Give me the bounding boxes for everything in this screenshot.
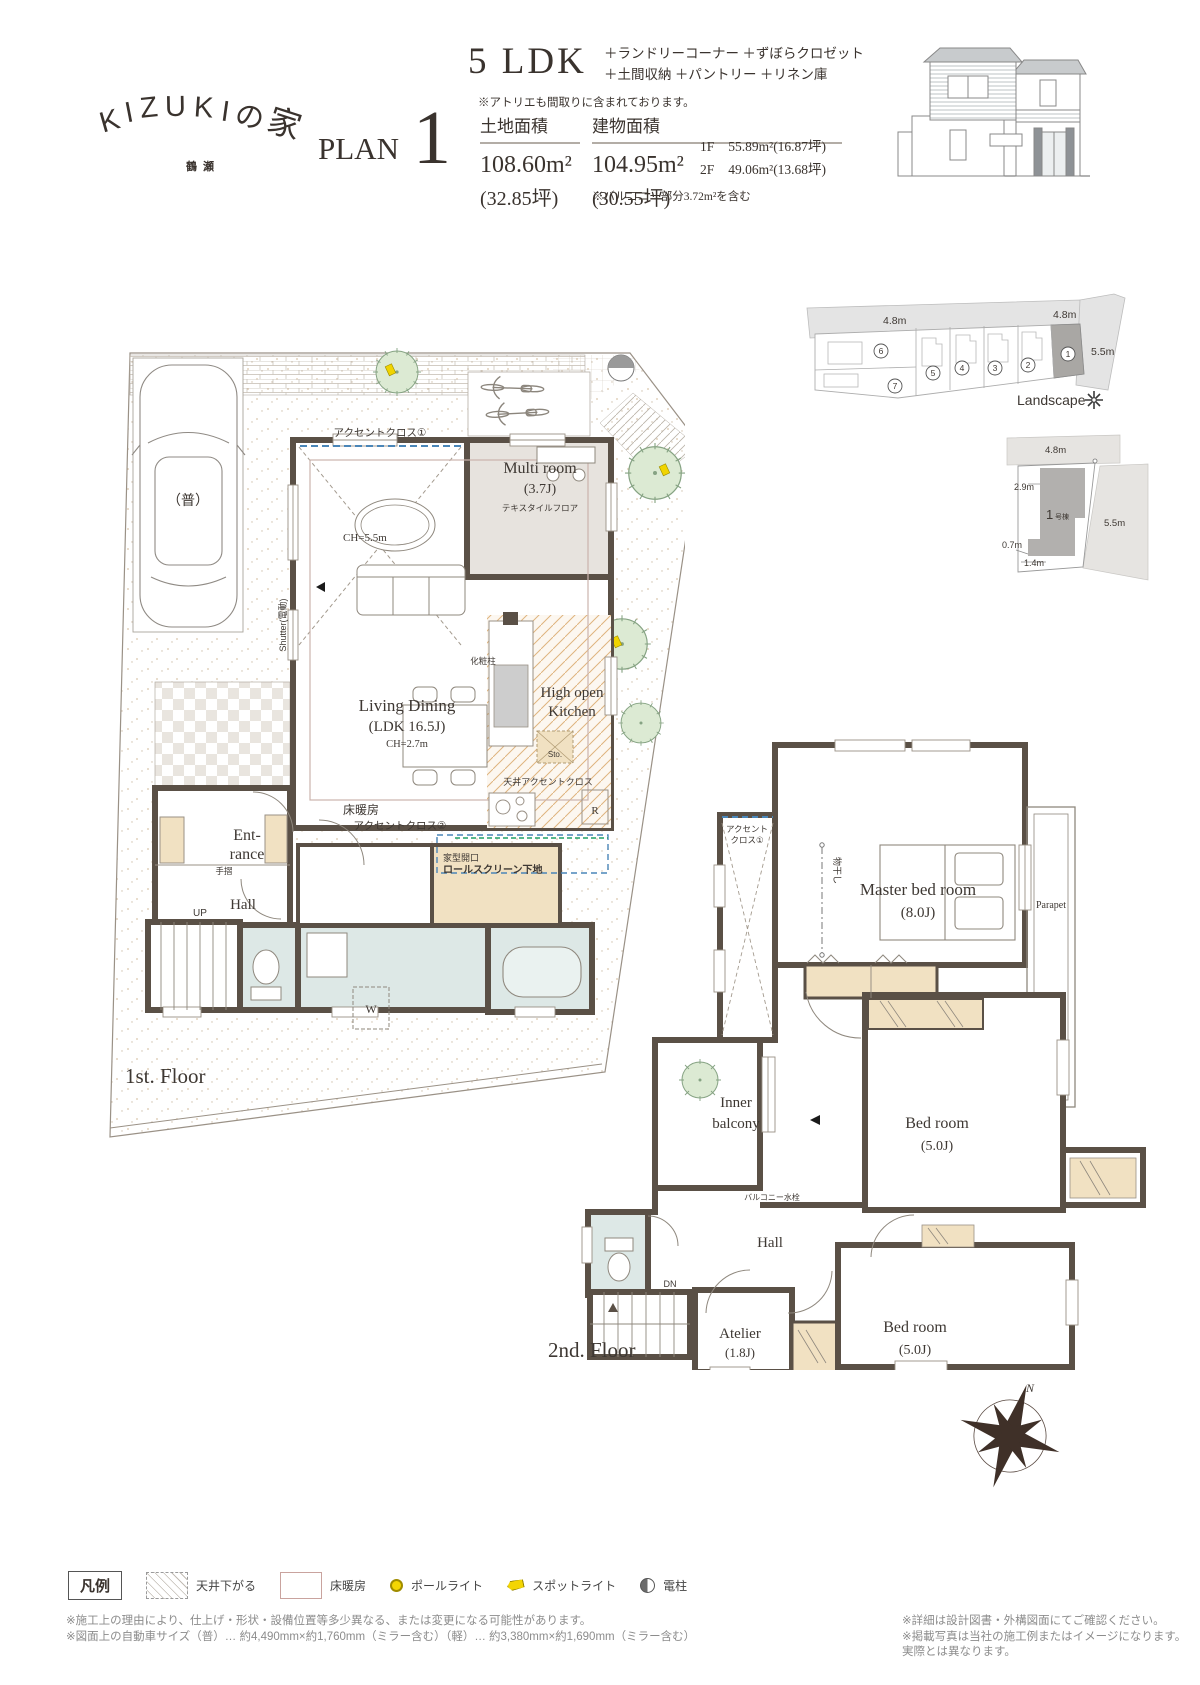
legend-item-ceiling: 天井下がる xyxy=(146,1572,256,1599)
legend-label: 床暖房 xyxy=(330,1577,366,1594)
label-floor-heating: 床暖房 xyxy=(343,802,379,817)
label-inner1: Inner xyxy=(720,1095,752,1111)
site-road-width-side: 5.5m xyxy=(1091,346,1115,358)
label-accent1a: アクセント xyxy=(726,824,768,834)
label-master: Master bed room xyxy=(860,880,976,899)
label-parapet: Parapet xyxy=(1036,900,1066,911)
site-lot-number-7: 7 xyxy=(893,381,898,391)
logo-subtitle: 鶴瀬 xyxy=(168,158,238,174)
logo-letter: の xyxy=(231,91,269,138)
legend: 凡例 天井下がる 床暖房 ポールライト スポットライト 電柱 xyxy=(68,1570,687,1600)
compass: N xyxy=(950,1378,1070,1493)
legend-label: 電柱 xyxy=(663,1577,687,1594)
tree-icon xyxy=(679,1059,721,1101)
legend-label: スポットライト xyxy=(532,1577,616,1594)
features-line1: ＋ランドリーコーナー ＋ずぼらクロゼット xyxy=(604,44,864,65)
site-road-width-left: 4.8m xyxy=(883,315,907,327)
site-lot-number-5: 5 xyxy=(931,368,936,378)
label-accent1: アクセントクロス① xyxy=(334,427,427,439)
label-washer: W xyxy=(365,1002,377,1016)
label-multi-floor: テキスタイルフロア xyxy=(502,503,578,513)
lot-detail-dim-bottom: 1.4m xyxy=(1024,558,1044,568)
label-up: UP xyxy=(193,908,207,919)
lot-detail-building-suffix: 号棟 xyxy=(1055,512,1069,521)
site-plan: 6 7 5 4 3 2 1 4.8m 4.8m 5.5m Landscape xyxy=(788,268,1133,418)
label-faucet: バルコニー水栓 xyxy=(744,1192,800,1202)
floor2-title: 2nd. Floor xyxy=(548,1338,636,1362)
site-lots: 6 7 5 4 3 2 1 xyxy=(815,324,1084,398)
footnote-line: ※施工上の理由により、仕上げ・形状・設備位置等多少異なる、または変更になる可能性… xyxy=(66,1614,896,1630)
label-pillar: 化粧柱 xyxy=(470,656,496,666)
ceiling-swatch-icon xyxy=(146,1572,188,1599)
label-entrance2: rance xyxy=(230,846,265,863)
land-area-tsubo: (32.85坪) xyxy=(480,182,580,211)
legend-title: 凡例 xyxy=(68,1571,122,1600)
label-accent1b: クロス① xyxy=(730,835,763,845)
label-inner2: balcony xyxy=(712,1116,760,1132)
toilet-icon xyxy=(605,1238,633,1281)
floor1-porch-tiles xyxy=(155,682,290,788)
site-lot-number-2: 2 xyxy=(1026,360,1031,370)
site-lot-number-4: 4 xyxy=(960,363,965,373)
floor2-area-label: 2F xyxy=(700,162,714,177)
floor2-area-value: 49.06m²(13.68坪) xyxy=(728,162,826,177)
floor1-area-value: 55.89m²(16.87坪) xyxy=(728,139,826,154)
floor2-plan: アクセント クロス① 物干し Master bed room (8.0J) Pa… xyxy=(540,695,1150,1370)
label-multi-size: (3.7J) xyxy=(524,482,557,497)
house-elevation xyxy=(890,36,1100,186)
land-area-value: 108.60m² xyxy=(480,152,580,179)
logo-letter: Z xyxy=(138,91,159,126)
label-atelier: Atelier xyxy=(719,1326,761,1342)
legend-item-heating: 床暖房 xyxy=(280,1572,366,1599)
label-handrail: 手摺 xyxy=(215,866,232,876)
brand-logo: KIZUKIの家 xyxy=(72,78,332,158)
footnotes-right: ※詳細は設計図書・外構図面にてご確認ください。 ※掲載写真は当社の施工例またはイ… xyxy=(902,1614,1192,1661)
site-lot-number-3: 3 xyxy=(993,363,998,373)
label-entrance1: Ent- xyxy=(233,827,261,844)
lot-detail-dim-bl: 0.7m xyxy=(1002,540,1022,550)
logo-letter: K xyxy=(96,103,124,140)
plan-title: PLAN 1 xyxy=(318,104,451,172)
label-drying: 物干し xyxy=(832,857,843,884)
utility-pole-icon xyxy=(608,355,634,381)
label-living-ch: CH=2.7m xyxy=(386,739,428,750)
label-dn: DN xyxy=(664,1279,677,1289)
site-road-width-right: 4.8m xyxy=(1053,309,1077,321)
layout-type: 5 LDK xyxy=(468,40,587,83)
label-atelier-size: (1.8J) xyxy=(725,1345,755,1360)
floor1-area-label: 1F xyxy=(700,139,714,154)
footnote-line: ※図面上の自動車サイズ（普）… 約4,490mm×約1,760mm（ミラー含む）… xyxy=(66,1630,896,1646)
label-bed2: Bed room xyxy=(883,1319,947,1336)
label-opening: 家型開口 xyxy=(443,852,479,863)
floor-heating-swatch-icon xyxy=(280,1572,322,1599)
entrance-storage xyxy=(265,815,287,863)
layout-note: ※アトリエも間取りに含まれております。 xyxy=(478,94,695,110)
legend-label: ポールライト xyxy=(411,1577,483,1594)
compass-rose-icon xyxy=(950,1378,1070,1493)
logo-letter: I xyxy=(219,96,232,130)
label-multi: Multi room xyxy=(503,460,577,477)
sofa-icon xyxy=(357,565,465,615)
balcony-note: ※バルコニー部分3.72m²を含む xyxy=(592,188,751,204)
room-bed2 xyxy=(838,1245,1072,1367)
vanity-icon xyxy=(307,933,347,977)
building-area-value: 104.95m² xyxy=(592,152,697,179)
footnote-line: ※掲載写真は当社の施工例またはイメージになります。実際とは異なります。 xyxy=(902,1630,1192,1661)
closet-bed1 xyxy=(868,999,983,1029)
legend-label: 天井下がる xyxy=(196,1577,256,1594)
label-master-size: (8.0J) xyxy=(901,905,936,921)
lot-detail-dim-left: 2.9m xyxy=(1014,482,1034,492)
label-hall1: Hall xyxy=(230,897,256,913)
closet-atelier xyxy=(792,1322,838,1370)
floor1-title: 1st. Floor xyxy=(125,1064,206,1088)
layout-features: ＋ランドリーコーナー ＋ずぼらクロゼット ＋土間収納 ＋パントリー ＋リネン庫 xyxy=(604,44,864,86)
plan-number: 1 xyxy=(413,104,451,172)
lot-detail-road-top: 4.8m xyxy=(1045,445,1066,456)
kitchen-counter xyxy=(489,612,535,826)
label-living: Living Dining xyxy=(359,696,456,715)
pole-light-icon xyxy=(390,1579,403,1592)
legend-item-pole-light: ポールライト xyxy=(390,1577,483,1594)
spot-light-icon xyxy=(506,1578,525,1591)
logo-letter: I xyxy=(122,96,136,130)
label-accent2: アクセントクロス② xyxy=(354,820,447,832)
land-area: 土地面積 108.60m² (32.85坪) xyxy=(480,112,580,211)
footnote-line: ※詳細は設計図書・外構図面にてご確認ください。 xyxy=(902,1614,1192,1630)
label-bed1: Bed room xyxy=(905,1115,969,1132)
site-lot-number-6: 6 xyxy=(879,346,884,356)
logo-letter: K xyxy=(193,91,215,125)
floor2-area: 2F49.06m²(13.68坪) xyxy=(700,159,826,182)
lot-detail-building-num: 1 xyxy=(1046,507,1053,522)
floor1-bike-area xyxy=(468,372,590,436)
entry-arrow-icon xyxy=(810,1115,820,1125)
toilet-icon xyxy=(251,950,281,1000)
logo-letter: U xyxy=(165,91,187,124)
floor-plan-sheet: KIZUKIの家 鶴瀬 PLAN 1 5 LDK ＋ランドリーコーナー ＋ずぼら… xyxy=(0,0,1200,1685)
label-bed2-size: (5.0J) xyxy=(899,1343,932,1358)
site-lot-number-1: 1 xyxy=(1066,349,1071,359)
legend-item-utility-pole: 電柱 xyxy=(640,1577,687,1594)
features-line2: ＋土間収納 ＋パントリー ＋リネン庫 xyxy=(604,65,864,86)
lot-detail: 4.8m 2.9m 5.5m 0.7m 1.4m 1 号棟 xyxy=(988,404,1163,589)
logo-letter: 家 xyxy=(262,93,308,149)
label-bed1-size: (5.0J) xyxy=(921,1139,954,1154)
label-rollscreen: ロールスクリーン下地 xyxy=(443,863,543,876)
land-area-label: 土地面積 xyxy=(480,112,580,144)
room-inner-balcony xyxy=(655,1040,760,1188)
entrance-storage xyxy=(160,817,184,863)
label-ch55: CH=5.5m xyxy=(343,532,387,544)
footnotes-left: ※施工上の理由により、仕上げ・形状・設備位置等多少異なる、または変更になる可能性… xyxy=(66,1614,896,1645)
legend-item-spot-light: スポットライト xyxy=(507,1577,616,1594)
compass-north-label: N xyxy=(1025,1381,1035,1395)
utility-pole-icon xyxy=(640,1578,655,1593)
room-wash-hall xyxy=(298,845,432,925)
floor1-area: 1F55.89m²(16.87坪) xyxy=(700,136,826,159)
label-hall2: Hall xyxy=(757,1235,783,1251)
floor-areas: 1F55.89m²(16.87坪) 2F49.06m²(13.68坪) xyxy=(700,136,826,182)
car-size-label: （普） xyxy=(167,492,209,508)
plan-label: PLAN xyxy=(318,133,399,172)
lot-detail-dim-right: 5.5m xyxy=(1104,518,1125,529)
floor1-parking: （普） xyxy=(132,358,245,632)
label-shutter: Shutter(電動) xyxy=(278,598,288,651)
label-living-size: (LDK 16.5J) xyxy=(369,719,446,735)
